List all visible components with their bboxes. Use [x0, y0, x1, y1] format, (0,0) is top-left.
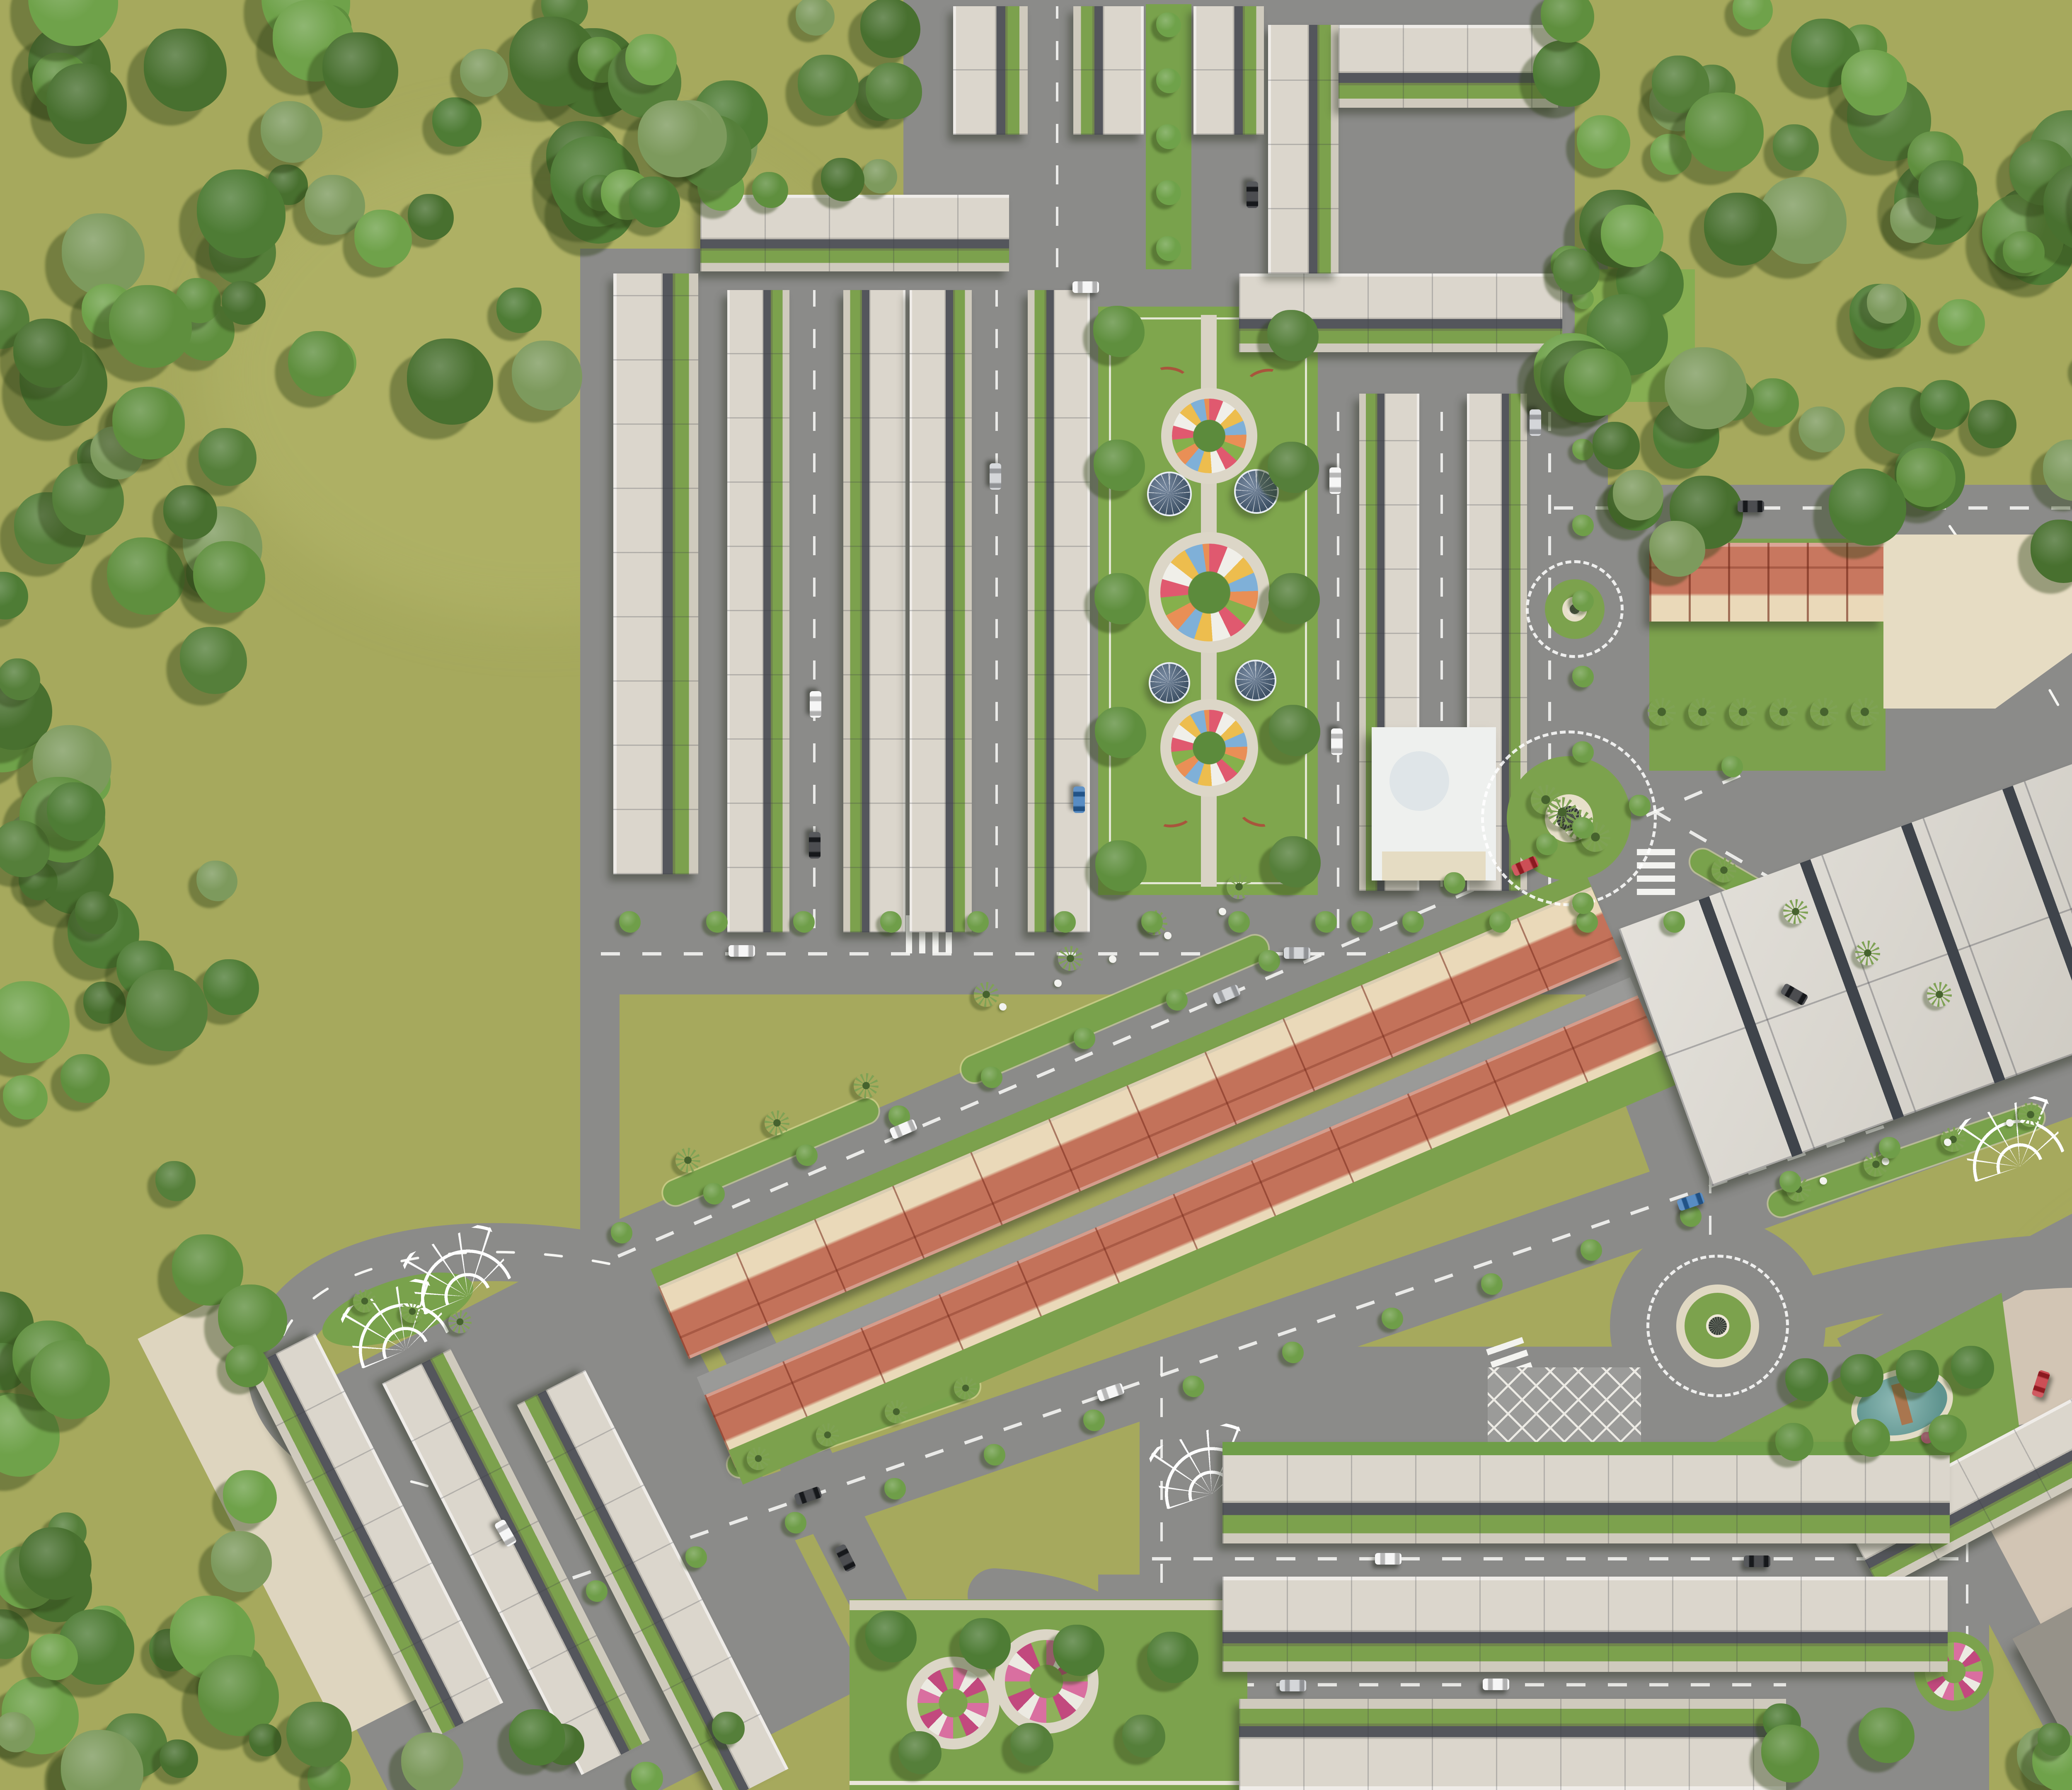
tree — [1968, 400, 2016, 448]
tree — [1095, 707, 1146, 758]
palm-tree — [816, 1423, 839, 1447]
rowhouse-top1 — [953, 6, 1028, 135]
dash-bottom1 — [1152, 1557, 1964, 1560]
palm-tree — [854, 1073, 879, 1098]
masterplan-canvas — [0, 0, 2072, 1790]
rowhouse-top2 — [1073, 6, 1144, 135]
car — [990, 463, 1001, 490]
tree — [1166, 989, 1188, 1011]
tree — [1269, 705, 1320, 756]
tree — [1109, 955, 1116, 963]
tree — [611, 1222, 632, 1243]
tree — [1775, 1423, 1813, 1461]
car — [1072, 281, 1099, 293]
tree — [1083, 1410, 1105, 1431]
tree — [1572, 439, 1594, 460]
tree — [432, 97, 482, 147]
tree — [1054, 980, 1062, 987]
tree — [1650, 134, 1692, 175]
car — [1280, 1680, 1306, 1691]
tree — [1402, 911, 1424, 933]
tree — [1779, 1171, 1801, 1193]
tree — [1840, 1354, 1883, 1397]
tree — [1010, 1723, 1053, 1766]
tree — [1944, 1139, 1951, 1146]
rowhouse-col2 — [843, 290, 905, 932]
tree — [712, 1712, 745, 1744]
tree — [959, 1618, 1011, 1669]
tree — [2038, 1723, 2070, 1756]
tree — [1629, 795, 1651, 816]
tree — [1219, 908, 1226, 915]
tree — [1093, 306, 1145, 357]
tree — [1704, 193, 1777, 266]
rowhouse-top-left — [700, 195, 1009, 271]
palm-tree — [2018, 1102, 2043, 1127]
tree — [1773, 124, 1819, 170]
park-dome1 — [1147, 472, 1192, 516]
tree — [1867, 284, 1907, 324]
car — [1329, 467, 1341, 494]
row-bottom1-roofgarden — [1222, 1442, 1950, 1543]
tree — [1481, 1273, 1503, 1295]
tree — [586, 1580, 608, 1602]
tree — [1649, 521, 1705, 577]
palm-tree — [1648, 698, 1676, 726]
palm-tree — [1688, 698, 1716, 726]
tree — [408, 194, 454, 240]
tree — [981, 1067, 1002, 1088]
tree — [1938, 299, 1985, 346]
tree — [13, 319, 82, 388]
car — [1284, 947, 1310, 959]
tree — [1581, 1239, 1602, 1261]
tree — [1269, 836, 1321, 888]
tree — [1156, 12, 1181, 37]
tree — [196, 861, 237, 901]
rowhouse-col3 — [910, 290, 972, 932]
tree — [866, 63, 922, 119]
tree — [1564, 348, 1631, 416]
tree — [785, 1512, 806, 1534]
tree — [1315, 911, 1337, 933]
tree — [999, 1003, 1007, 1011]
tree — [1351, 911, 1373, 933]
tree — [1267, 310, 1319, 361]
tree — [984, 1444, 1005, 1466]
tree — [967, 911, 989, 933]
car — [1744, 1555, 1770, 1567]
tree — [1268, 442, 1319, 493]
rowhouse-col4 — [1028, 290, 1090, 932]
tree — [1147, 1632, 1198, 1683]
tree — [1882, 1158, 1889, 1165]
tree — [1593, 422, 1640, 469]
tree — [1094, 440, 1145, 491]
car — [1375, 1553, 1402, 1565]
rowhouse-col1 — [727, 290, 789, 932]
rowhouse-g7v — [1268, 25, 1339, 273]
tree — [793, 911, 815, 933]
tree — [47, 782, 105, 841]
park-dome4 — [1235, 660, 1276, 701]
rowhouse-west-edge — [613, 273, 698, 874]
tree — [1444, 872, 1465, 894]
tree — [1122, 1715, 1165, 1758]
tree — [203, 959, 259, 1015]
tree — [286, 1702, 352, 1767]
tree — [460, 49, 508, 97]
tree — [752, 172, 788, 208]
tree — [798, 55, 859, 116]
tree — [1156, 236, 1181, 261]
car — [1247, 181, 1258, 208]
tree — [1750, 378, 1798, 427]
tree — [1665, 347, 1746, 429]
park-flower2 — [1160, 544, 1258, 641]
car — [810, 691, 821, 718]
tree — [1798, 406, 1844, 452]
palm-tree — [1783, 899, 1808, 924]
pocket-park-fence — [850, 1781, 1247, 1785]
tree — [1663, 911, 1685, 933]
car — [1331, 728, 1343, 755]
tree — [249, 1724, 282, 1756]
tree — [1572, 817, 1594, 839]
palm-tree — [747, 1447, 770, 1470]
roundabout3-dashring — [1646, 1255, 1789, 1397]
tree — [1572, 590, 1594, 612]
palm-tree — [1227, 874, 1251, 899]
park-flower1 — [1172, 399, 1247, 473]
tree — [685, 1546, 707, 1568]
tree — [222, 281, 266, 325]
tree — [83, 982, 126, 1024]
pocket-park-path — [850, 1600, 1247, 1610]
clubhouse-dome — [1389, 751, 1449, 811]
palm-tree — [1711, 858, 1736, 883]
car — [1530, 409, 1541, 436]
palm-tree — [1855, 941, 1880, 965]
tree — [1879, 1137, 1900, 1159]
tree — [880, 911, 902, 933]
tree — [1576, 911, 1598, 933]
tree — [625, 34, 677, 85]
palm-tree — [885, 1400, 908, 1423]
park-dome3 — [1149, 662, 1190, 704]
tree — [1536, 834, 1558, 855]
palm-tree — [1769, 698, 1798, 726]
tree — [1095, 840, 1147, 892]
tree — [703, 1183, 725, 1205]
dash-topstreet — [1056, 6, 1058, 267]
tree — [31, 1634, 77, 1680]
palm-tree — [954, 1376, 977, 1400]
tree — [865, 1611, 917, 1662]
palm-tree — [974, 982, 999, 1007]
tree — [225, 1345, 268, 1387]
palm-tree — [448, 1310, 472, 1333]
tree — [1572, 666, 1594, 687]
tree — [1572, 893, 1594, 914]
palm-tree — [401, 1300, 424, 1323]
tree — [2006, 1119, 2014, 1127]
tree — [1164, 932, 1172, 939]
palm-tree — [1729, 698, 1757, 726]
tree — [1156, 180, 1181, 205]
tree — [796, 1144, 818, 1166]
tree — [1785, 1358, 1828, 1401]
tree — [1183, 1376, 1204, 1397]
tree — [211, 1531, 272, 1592]
tree — [1820, 1177, 1827, 1185]
rowhouse-g7h — [1339, 25, 1558, 108]
car — [809, 832, 821, 859]
tree — [1156, 68, 1181, 93]
tree — [631, 1762, 663, 1790]
car — [1738, 501, 1764, 512]
tree — [1489, 911, 1511, 933]
tree — [496, 288, 542, 333]
tree — [898, 1731, 942, 1774]
pocket-flower1 — [917, 1667, 989, 1739]
tree — [1228, 911, 1250, 933]
tree — [706, 911, 728, 933]
tree — [1259, 950, 1280, 972]
car — [1483, 1679, 1509, 1690]
rowhouse-top3 — [1193, 6, 1264, 135]
tree — [61, 1054, 109, 1103]
palm-tree — [1927, 982, 1952, 1007]
tree — [1852, 1419, 1890, 1457]
palm-tree — [353, 1289, 376, 1313]
tree — [1951, 1346, 1994, 1389]
tree — [163, 485, 217, 539]
roundabout1-dashring — [1526, 560, 1624, 658]
tree — [1761, 1725, 1819, 1783]
tree — [1920, 380, 1970, 430]
tree — [884, 1478, 906, 1500]
tree — [619, 911, 641, 933]
tree — [1577, 115, 1630, 169]
tree — [1282, 1342, 1304, 1363]
clubhouse-court — [1382, 851, 1486, 880]
row-bottom3 — [1239, 1699, 1786, 1790]
car — [1073, 786, 1085, 813]
palm-tree — [1810, 698, 1838, 726]
palm-tree — [765, 1110, 789, 1135]
car — [729, 945, 755, 957]
tree — [160, 1739, 198, 1778]
tree — [1141, 911, 1163, 933]
tree — [1572, 515, 1594, 536]
tree — [1721, 756, 1743, 777]
tree — [1053, 1625, 1104, 1676]
tree — [1382, 1308, 1403, 1329]
tree — [1054, 911, 1076, 933]
tree — [1074, 1028, 1095, 1049]
road-triangle-north — [1761, 1260, 2072, 1318]
tree — [1572, 741, 1594, 763]
palm-tree — [1851, 698, 1879, 726]
dash-street2 — [995, 290, 998, 928]
row-bottom2 — [1222, 1577, 1948, 1672]
palm-tree — [675, 1148, 700, 1173]
tree — [75, 891, 118, 934]
tree — [1156, 124, 1181, 149]
tree — [1929, 1415, 1967, 1453]
park-flower3 — [1171, 710, 1247, 786]
